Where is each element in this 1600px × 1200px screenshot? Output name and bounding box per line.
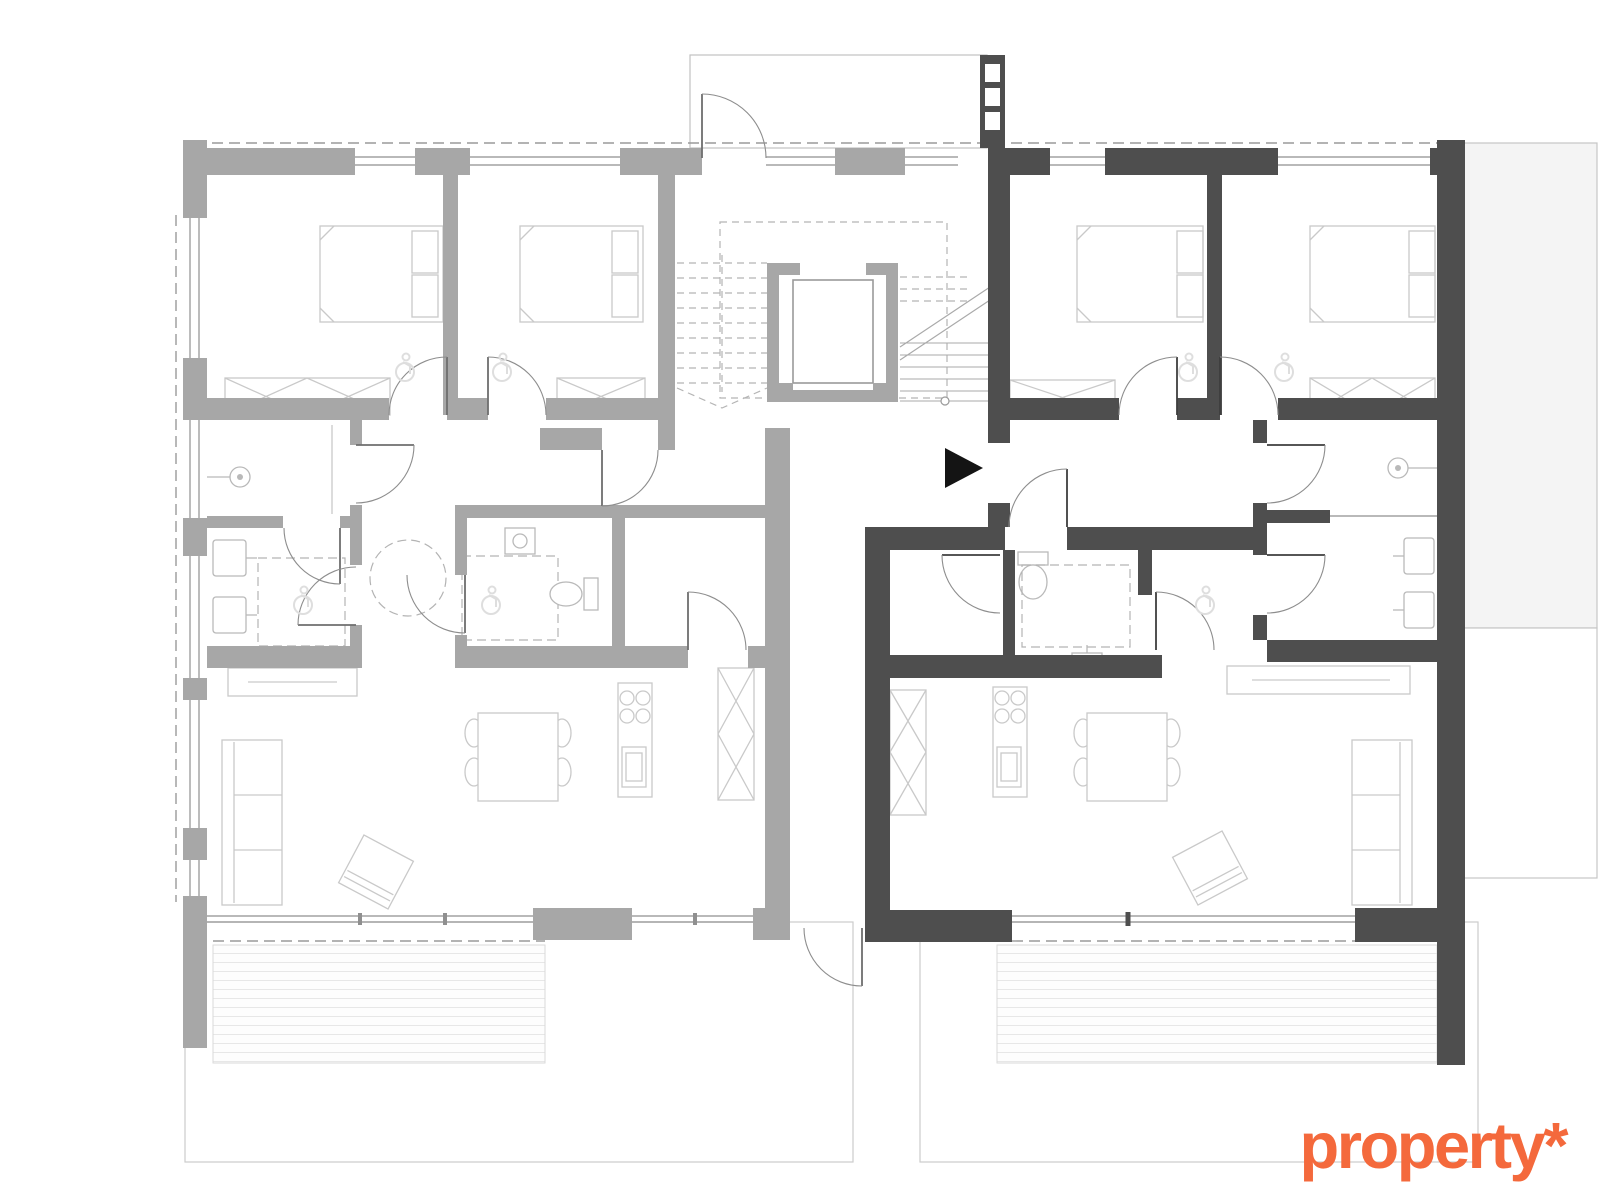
stair-core <box>677 222 990 408</box>
sofa-icon <box>1352 740 1412 905</box>
entrance-porch <box>690 55 987 148</box>
right-bedroom-2 <box>1310 226 1435 415</box>
kitchen-tall-units <box>718 668 754 800</box>
bed-icon <box>1310 226 1435 322</box>
brand-logo: property* <box>1300 1113 1566 1178</box>
entrance-arrow-icon <box>945 448 983 488</box>
terrace-right <box>997 941 1437 1063</box>
turning-circle <box>370 540 446 616</box>
stair-flight-down <box>900 287 990 405</box>
sink-icon <box>1404 538 1434 574</box>
floor-plan-drawing <box>0 0 1600 1200</box>
right-bathroom <box>1393 538 1434 628</box>
right-bedroom-1 <box>1010 226 1203 415</box>
kitchen-tall-units <box>890 690 926 815</box>
neighbor-building <box>1450 143 1597 878</box>
shower-head-icon <box>1388 458 1437 478</box>
elevator <box>767 263 898 402</box>
shower-head-icon <box>207 467 250 487</box>
dining-table-icon <box>1074 713 1180 801</box>
left-bathroom <box>213 540 345 646</box>
right-walls <box>865 55 1465 1065</box>
left-apartment <box>183 94 958 1048</box>
sink-icon <box>1404 592 1434 628</box>
terrace-left <box>213 941 545 1063</box>
sink-icon <box>213 540 246 576</box>
floor-plan-page: property* <box>0 0 1600 1200</box>
dining-table-icon <box>465 713 571 801</box>
elevator-car <box>793 280 873 383</box>
left-living-dining-kitchen <box>222 668 754 909</box>
stove-icon <box>995 691 1025 723</box>
toilet-icon <box>550 578 598 610</box>
lounge-chair-icon <box>339 835 414 909</box>
kitchen-island <box>618 683 652 797</box>
bed-icon <box>320 226 443 322</box>
left-bedroom-1 <box>225 226 443 415</box>
stair-flight-up <box>677 255 767 408</box>
bed-icon <box>1077 226 1203 322</box>
right-living-dining-kitchen <box>890 666 1412 905</box>
sink-icon <box>213 597 246 633</box>
sofa-icon <box>222 740 282 905</box>
lounge-chair-icon <box>1173 831 1248 905</box>
kitchen-island <box>993 687 1027 797</box>
accessibility-icons-right <box>1179 354 1293 615</box>
right-apartment <box>865 55 1465 1065</box>
bed-icon <box>520 226 643 322</box>
left-shower-room <box>207 425 332 514</box>
stove-icon <box>620 691 650 723</box>
left-inner-bathroom <box>462 528 598 640</box>
right-shower-room <box>1388 458 1437 478</box>
